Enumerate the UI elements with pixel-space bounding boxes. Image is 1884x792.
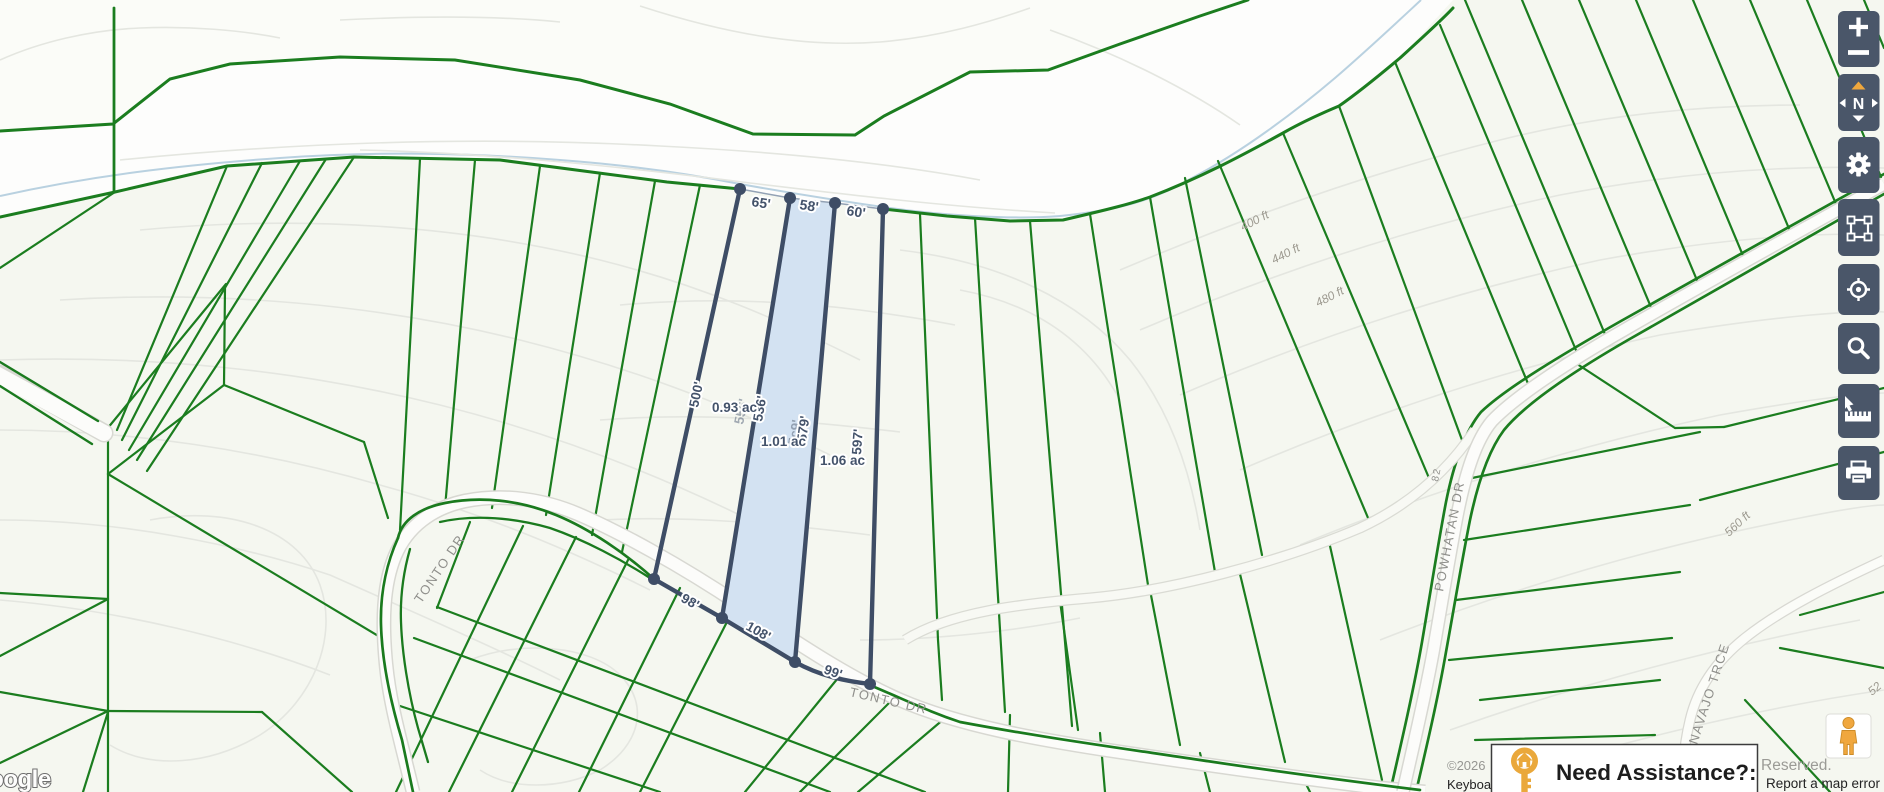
svg-text:©2026: ©2026 [1447, 758, 1486, 773]
svg-text:Need Assistance?:: Need Assistance?: [1556, 760, 1757, 785]
svg-text:Google: Google [0, 766, 51, 792]
svg-text:N: N [1853, 96, 1865, 113]
svg-text:60': 60' [846, 202, 867, 221]
svg-text:597': 597' [849, 428, 866, 455]
svg-text:1.06 ac: 1.06 ac [820, 453, 866, 468]
svg-text:Reserved.: Reserved. [1761, 757, 1832, 774]
svg-text:65': 65' [751, 193, 772, 212]
svg-text:1.01 ac: 1.01 ac [761, 434, 807, 449]
svg-text:58': 58' [799, 196, 820, 215]
svg-text:Report a map error: Report a map error [1766, 776, 1881, 791]
svg-text:0.93 ac: 0.93 ac [712, 400, 758, 415]
